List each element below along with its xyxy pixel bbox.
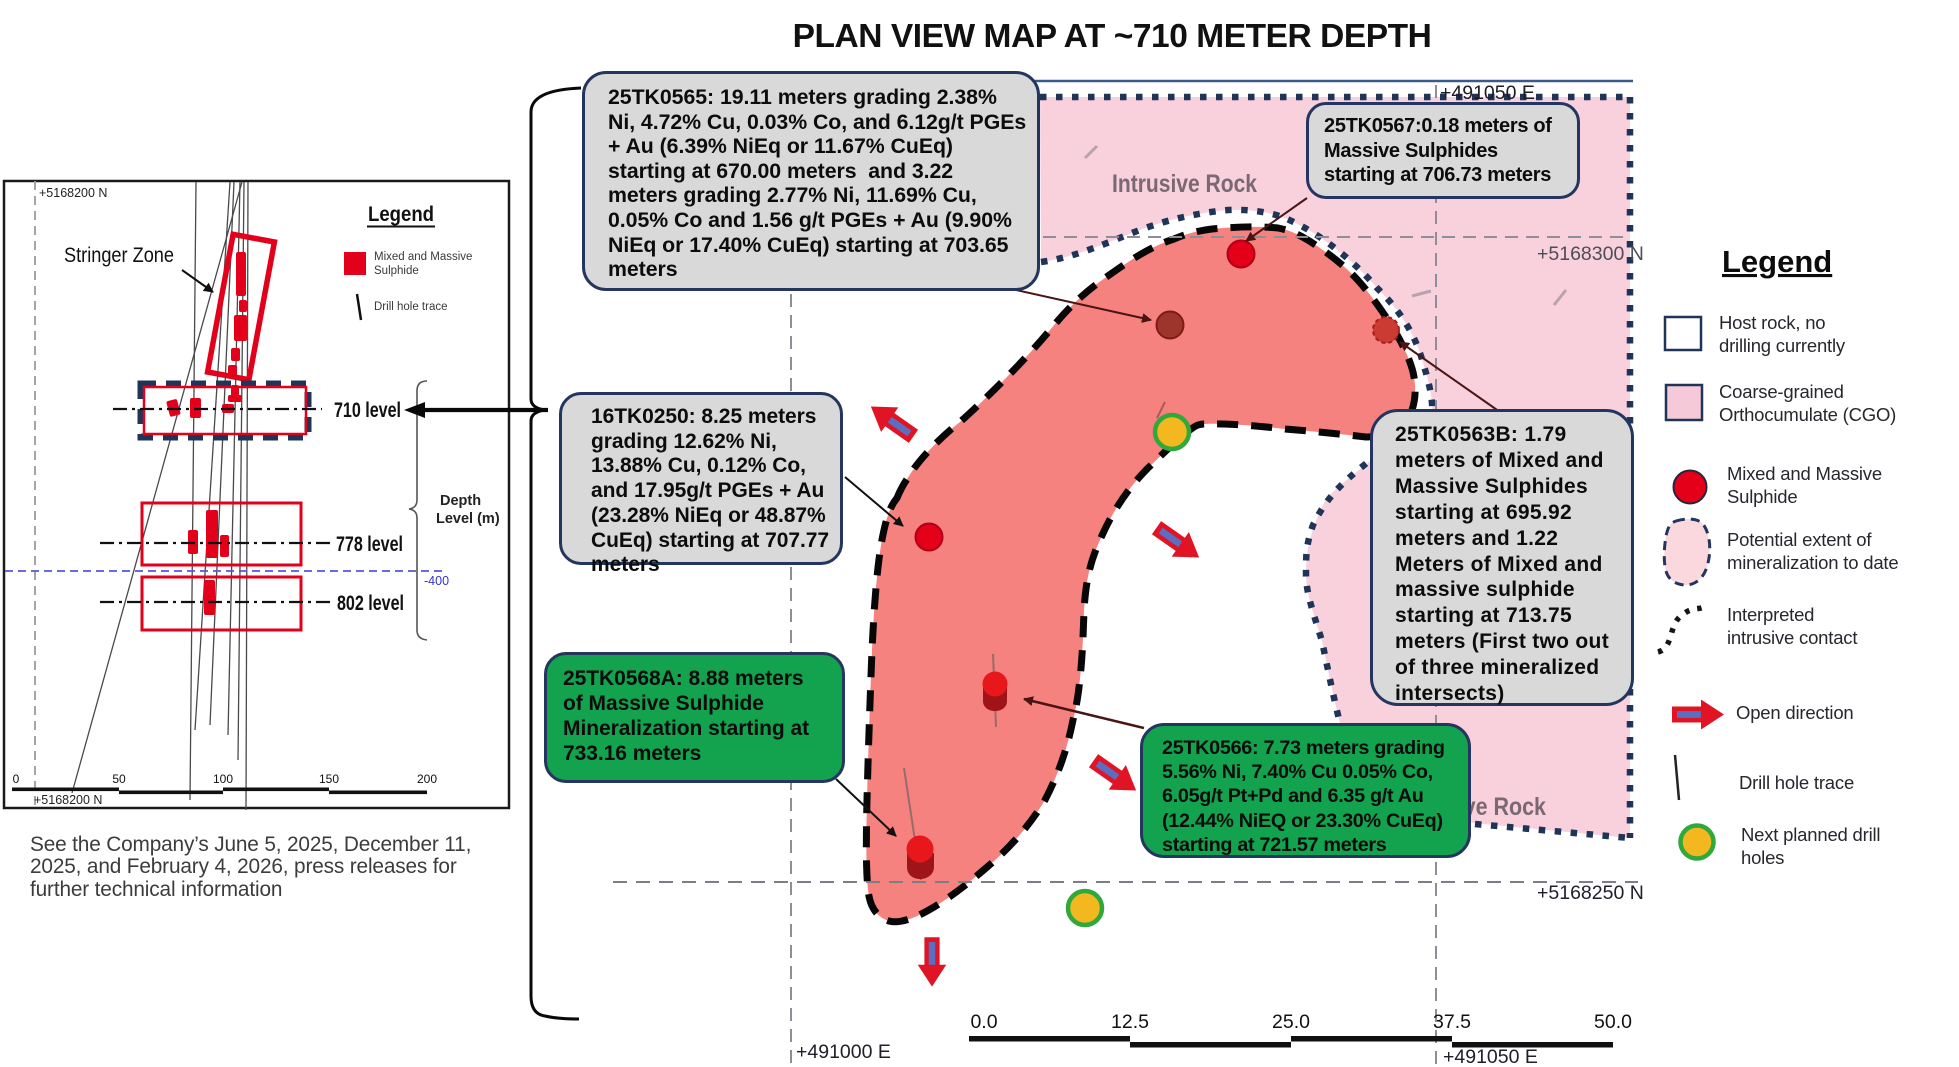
svg-text:802 level: 802 level bbox=[337, 592, 404, 615]
svg-text:0: 0 bbox=[13, 772, 20, 786]
svg-text:+5168200 N: +5168200 N bbox=[34, 793, 102, 807]
svg-text:Depth: Depth bbox=[440, 493, 481, 509]
svg-text:37.5: 37.5 bbox=[1433, 1011, 1471, 1033]
svg-text:Legend: Legend bbox=[1722, 244, 1832, 279]
svg-text:50.0: 50.0 bbox=[1594, 1011, 1632, 1033]
svg-text:+5168300 N: +5168300 N bbox=[1537, 243, 1644, 265]
svg-text:Level (m): Level (m) bbox=[436, 511, 500, 527]
svg-text:Drill hole trace: Drill hole trace bbox=[374, 301, 448, 313]
svg-text:+491000 E: +491000 E bbox=[796, 1041, 891, 1063]
svg-text:100: 100 bbox=[213, 772, 233, 786]
svg-text:Sulphide: Sulphide bbox=[374, 265, 419, 277]
svg-text:710 level: 710 level bbox=[334, 399, 401, 422]
svg-text:+5168200 N: +5168200 N bbox=[39, 186, 107, 200]
svg-text:0.0: 0.0 bbox=[970, 1011, 997, 1033]
svg-text:Stringer Zone: Stringer Zone bbox=[64, 244, 174, 267]
svg-text:+491050 E: +491050 E bbox=[1443, 1046, 1538, 1067]
svg-text:Intrusive Rock: Intrusive Rock bbox=[1112, 170, 1257, 198]
svg-text:778 level: 778 level bbox=[336, 533, 403, 556]
svg-text:50: 50 bbox=[112, 772, 126, 786]
svg-text:Legend: Legend bbox=[368, 203, 434, 226]
svg-text:+5168250 N: +5168250 N bbox=[1537, 882, 1644, 904]
svg-text:25.0: 25.0 bbox=[1272, 1011, 1310, 1033]
svg-text:-400: -400 bbox=[424, 574, 449, 588]
svg-text:150: 150 bbox=[319, 772, 339, 786]
svg-text:200: 200 bbox=[417, 772, 437, 786]
svg-text:+491050 E: +491050 E bbox=[1440, 82, 1535, 104]
svg-text:Mixed and Massive: Mixed and Massive bbox=[374, 251, 472, 263]
svg-text:12.5: 12.5 bbox=[1111, 1011, 1149, 1033]
